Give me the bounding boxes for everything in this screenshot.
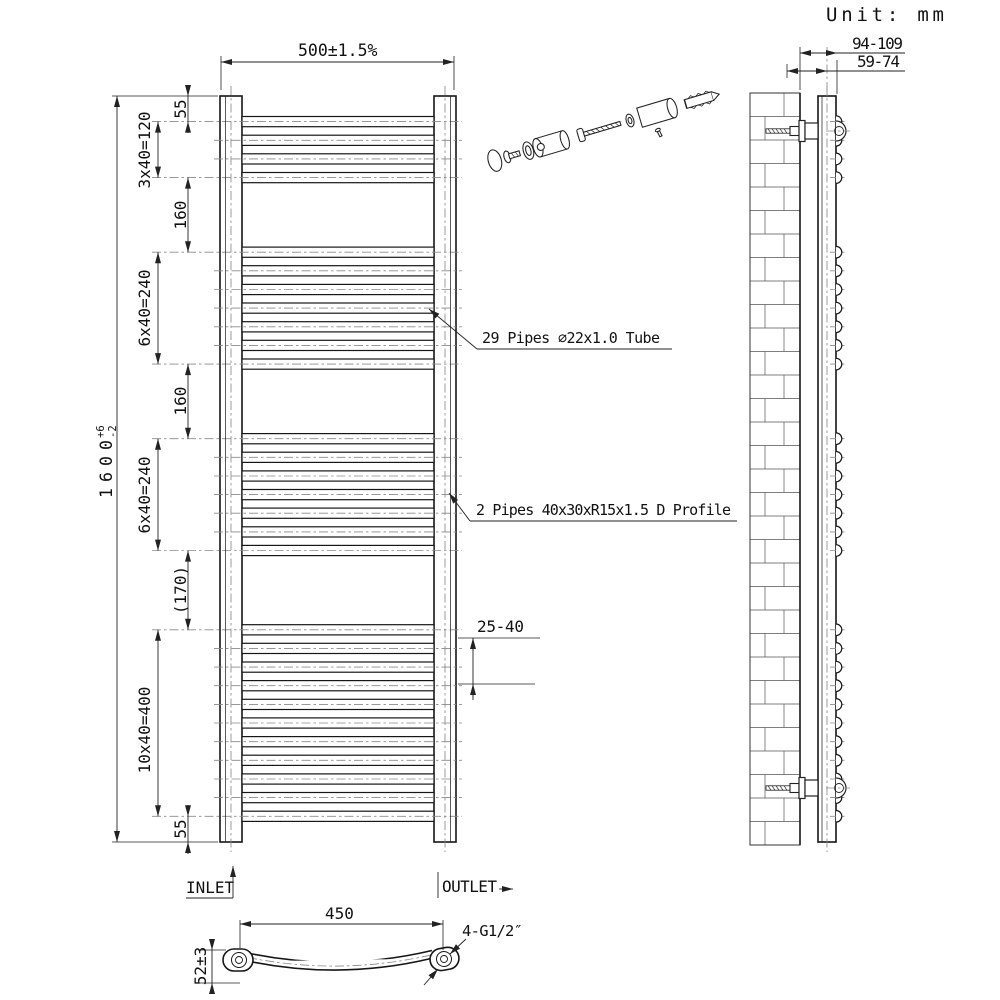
dim-3x40: 3x40=120 [135,111,154,188]
dim-55-bottom: 55 [171,819,190,838]
top-wall-bracket [766,121,850,142]
bottom-wall-bracket [766,778,850,799]
dim-6x40-a: 6x40=240 [135,269,154,346]
pipes-note: 29 Pipes ∅22x1.0 Tube [482,329,660,347]
left-dimension-chain: 55 3x40=120 160 6x40=240 160 6x40=240 (1… [135,85,190,854]
bow-depth-label: 52±3 [191,947,210,986]
gap-dimension: 25-40 [458,617,540,700]
depth-dimensions: 94-109 59-74 [787,34,905,96]
pipe-rungs [152,117,462,822]
pipes-note-leader: 29 Pipes ∅22x1.0 Tube [429,309,672,349]
towel-radiator-drawing: 500±1.5% 1600 +6 -2 55 3x40=120 160 [0,0,1000,1000]
centers-dim-label: 450 [325,904,354,923]
small-screw [502,147,521,163]
brick-wall [750,93,800,845]
unit-label: Unit: mm [826,4,944,26]
height-dimension: 1600 +6 -2 [95,96,218,842]
right-end-fitting [428,946,460,973]
dim-10x40: 10x40=400 [135,687,154,774]
left-end-fitting [223,949,253,971]
outlet-callout: OUTLET [438,872,513,898]
outlet-label: OUTLET [442,877,497,896]
dim-160-a: 160 [171,201,190,230]
width-dimension: 500±1.5% [221,41,454,90]
width-dim-label: 500±1.5% [298,41,378,60]
washer [624,113,635,128]
bracket-body [531,130,571,159]
height-tol-plus: +6 [95,425,107,438]
spacer-sleeve [637,97,680,127]
side-view: 94-109 59-74 [750,34,905,852]
gap-dim-label: 25-40 [477,617,524,636]
tiny-screw [655,128,663,138]
profile-note: 2 Pipes 40x30xR15x1.5 D Profile [476,501,731,519]
bottom-view: 450 52±3 4-G1/2″ [191,904,523,994]
dim-6x40-b: 6x40=240 [135,456,154,533]
centers-dimension: 450 [240,904,443,950]
height-dim-label: 1600 [97,440,116,498]
long-screw [576,117,622,142]
dim-170: (170) [171,566,190,614]
profile-note-leader: 2 Pipes 40x30xR15x1.5 D Profile [449,493,737,521]
inlet-label: INLET [186,878,235,897]
depth-center-label: 59-74 [857,52,900,71]
height-tol-minus: -2 [107,425,119,438]
dim-160-b: 160 [171,387,190,416]
mounting-hardware-exploded [485,84,726,186]
front-view: 500±1.5% 1600 +6 -2 55 3x40=120 160 [95,41,737,898]
thread-note: 4-G1/2″ [462,922,523,940]
cover-cap [485,148,504,173]
inlet-callout: INLET [186,866,235,898]
depth-total-label: 94-109 [852,34,903,53]
wall-anchor-plug [684,88,721,111]
technical-drawing-page: 500±1.5% 1600 +6 -2 55 3x40=120 160 [0,0,1000,1000]
curved-tube-bottom-edge [250,959,431,971]
dim-55-top: 55 [171,99,190,118]
